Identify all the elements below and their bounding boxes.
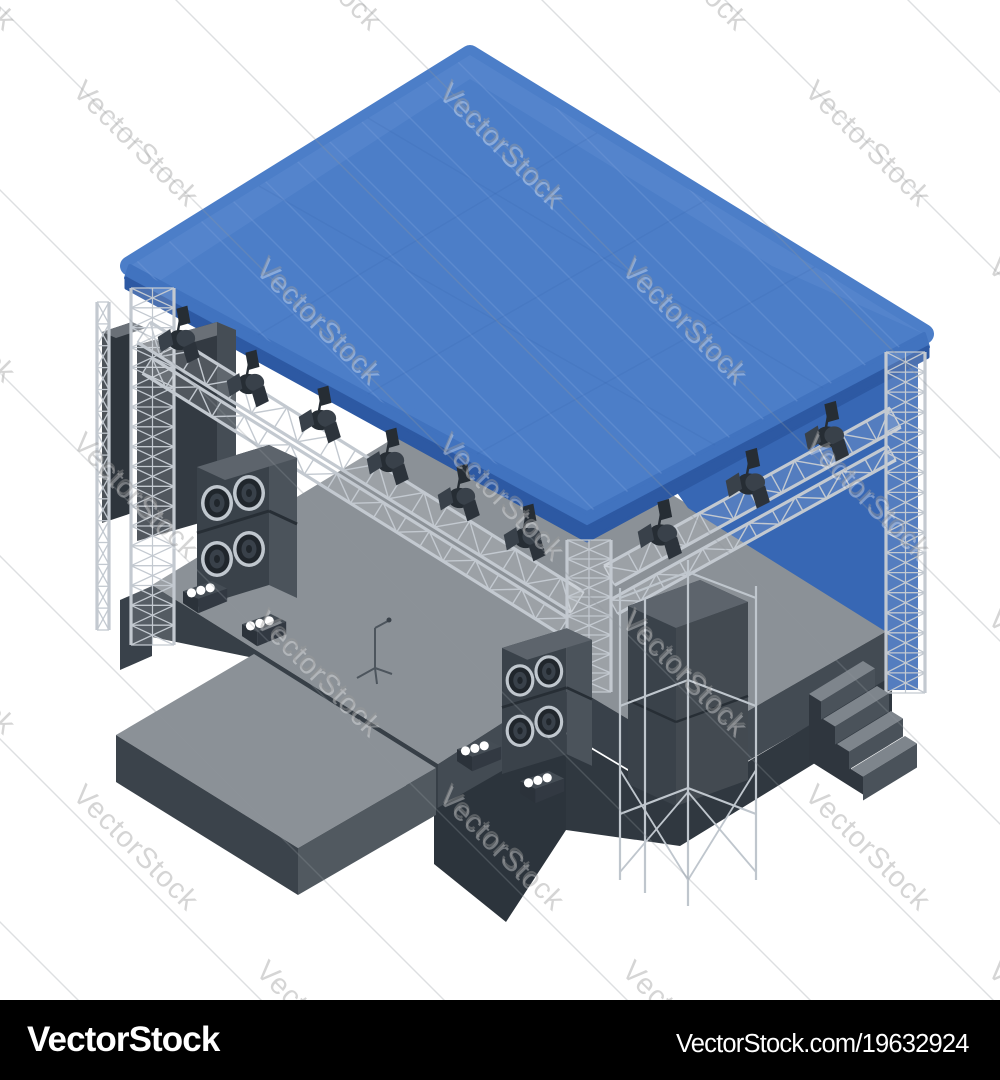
svg-text:VectorStock: VectorStock xyxy=(249,0,387,37)
svg-text:VectorStock: VectorStock xyxy=(615,0,753,37)
svg-text:VectorStock: VectorStock xyxy=(0,603,22,741)
svg-text:VectorStock: VectorStock xyxy=(798,75,936,213)
svg-text:VectorStock: VectorStock xyxy=(981,0,1000,37)
svg-text:VectorStock: VectorStock xyxy=(798,779,936,917)
svg-text:VectorStock: VectorStock xyxy=(0,251,22,389)
svg-text:VectorStock: VectorStock xyxy=(981,603,1000,741)
svg-text:VectorStock: VectorStock xyxy=(981,0,1000,40)
svg-text:VectorStock: VectorStock xyxy=(981,251,1000,389)
svg-text:VectorStock.com/19632924: VectorStock.com/19632924 xyxy=(676,1030,969,1058)
svg-text:VectorStock: VectorStock xyxy=(66,75,204,213)
svg-text:VectorStock: VectorStock xyxy=(27,1020,221,1059)
